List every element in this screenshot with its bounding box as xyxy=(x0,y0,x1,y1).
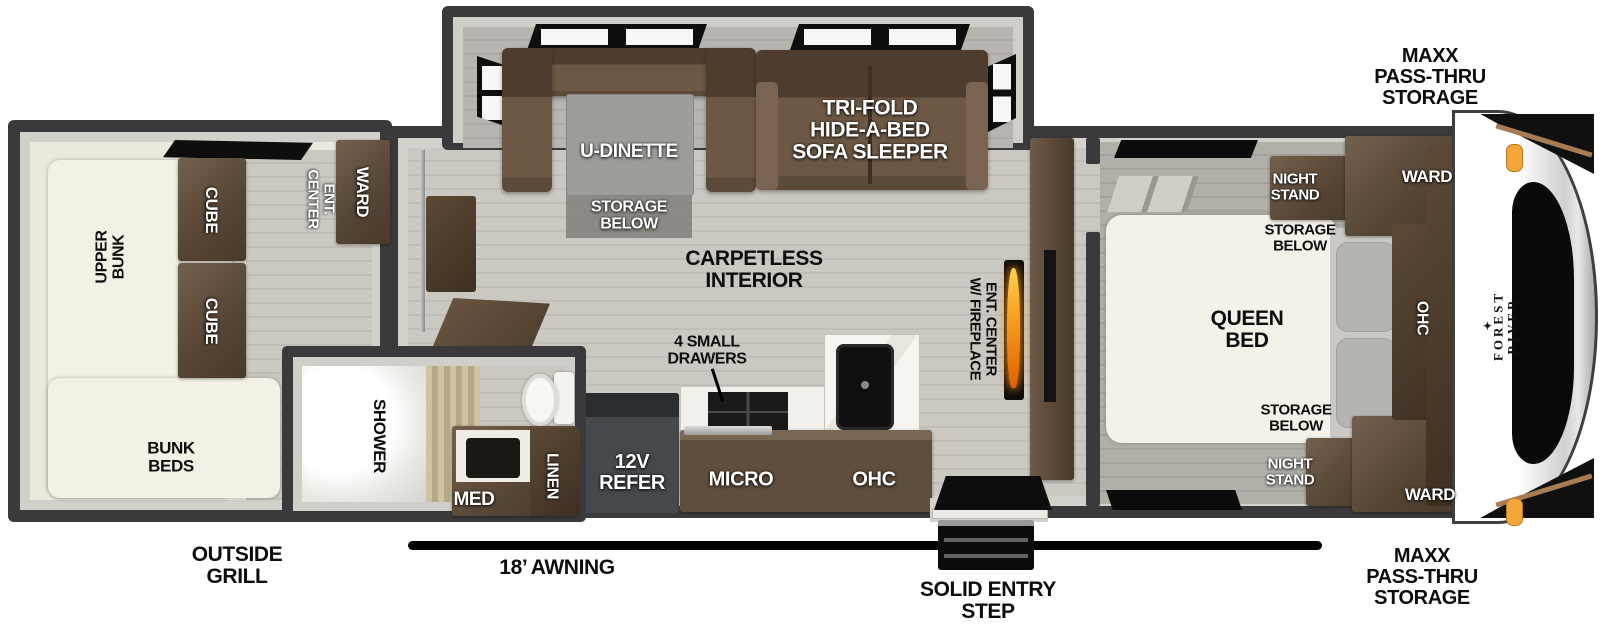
bedroom-wall xyxy=(1086,232,1100,506)
entry-step-band-2 xyxy=(944,554,1028,558)
cap-marker-light-bottom-icon xyxy=(1506,498,1523,526)
label-bedroom-ward-bottom: WARD xyxy=(1405,486,1455,504)
label-carpetless-interior: CARPETLESS INTERIOR xyxy=(685,248,822,292)
sink-faucet-icon xyxy=(861,381,869,389)
fireplace-flame-icon xyxy=(1007,268,1020,388)
label-bedroom-ward-top: WARD xyxy=(1402,168,1452,186)
label-micro: MICRO xyxy=(709,470,774,491)
trifold-sofa-arm-left xyxy=(756,82,778,190)
bed-bench-cushion-2 xyxy=(1336,338,1396,428)
label-outside-grill: OUTSIDE GRILL xyxy=(192,544,283,588)
label-upper-bunk: UPPER BUNK xyxy=(94,230,127,283)
toilet-bowl-icon xyxy=(522,374,558,426)
dinette-window-icon xyxy=(527,24,707,50)
label-cube-top: CUBE xyxy=(202,187,220,234)
bedroom-window-top-icon xyxy=(1114,140,1258,158)
label-bunk-ent-center: ENT. CENTER xyxy=(305,169,336,228)
bath-sink xyxy=(466,438,520,478)
sofa-window-icon xyxy=(790,24,970,50)
entry-step-band-1 xyxy=(944,538,1028,542)
label-storage-below-bottom: STORAGE BELOW xyxy=(1260,402,1331,433)
counter-edge-trim xyxy=(684,426,772,435)
label-12v-refer: 12V REFER xyxy=(599,452,665,494)
forest-river-wordmark: FOREST RIVER xyxy=(1491,279,1518,374)
cap-windshield-decal xyxy=(1512,182,1574,464)
label-bunk-beds: BUNK BEDS xyxy=(147,439,195,474)
trifold-sofa-arm-right xyxy=(966,82,988,190)
label-storage-below-top: STORAGE BELOW xyxy=(1264,222,1335,253)
entry-step xyxy=(938,520,1034,570)
shower-stall xyxy=(302,366,426,502)
refrigerator-top xyxy=(584,393,679,417)
label-med: MED xyxy=(453,490,494,510)
label-4-small-drawers: 4 SMALL DRAWERS xyxy=(668,334,747,367)
bed-bench-cushion-1 xyxy=(1336,242,1396,332)
bedroom-steps xyxy=(1107,176,1199,212)
ent-center-tv xyxy=(1044,250,1056,402)
label-storage-below-dinette: STORAGE BELOW xyxy=(591,199,667,232)
label-solid-entry-step: SOLID ENTRY STEP xyxy=(920,579,1056,623)
label-bunk-ward: WARD xyxy=(353,167,371,217)
cap-marker-light-top-icon xyxy=(1506,144,1523,172)
label-u-dinette: U-DINETTE xyxy=(580,142,678,162)
u-dinette-bench-right xyxy=(706,48,756,192)
bedroom-window-bottom-icon xyxy=(1106,490,1242,510)
bunk-tv-icon xyxy=(163,140,313,160)
bedroom-wall-stub xyxy=(1086,138,1100,164)
wall-tv-panel xyxy=(426,196,476,292)
label-trifold-sofa: TRI-FOLD HIDE-A-BED SOFA SLEEPER xyxy=(792,97,947,162)
label-shower: SHOWER xyxy=(370,399,388,473)
label-kitchen-ohc: OHC xyxy=(852,470,895,491)
entry-step-edge-top xyxy=(938,520,1034,526)
u-dinette-bench-left xyxy=(502,48,552,192)
entry-mat xyxy=(934,476,1052,510)
label-night-stand-top: NIGHT STAND xyxy=(1271,171,1320,202)
label-awning: 18’ AWNING xyxy=(499,557,614,579)
label-maxx-storage-top: MAXX PASS-THRU STORAGE xyxy=(1374,46,1486,108)
grab-pole xyxy=(420,150,425,332)
label-maxx-storage-bottom: MAXX PASS-THRU STORAGE xyxy=(1366,546,1478,608)
label-bedroom-ohc: OHC xyxy=(1413,301,1430,335)
label-ent-center-fireplace: ENT. CENTER W/ FIREPLACE xyxy=(967,278,998,381)
awning-line xyxy=(408,541,1322,550)
label-cube-bottom: CUBE xyxy=(202,298,220,345)
rv-floorplan: ✦ FOREST RIVER UPPER BUNK CUBE CUBE ENT.… xyxy=(0,0,1600,628)
label-queen-bed: QUEEN BED xyxy=(1211,308,1284,352)
label-night-stand-bottom: NIGHT STAND xyxy=(1266,456,1315,487)
label-linen: LINEN xyxy=(543,453,560,499)
